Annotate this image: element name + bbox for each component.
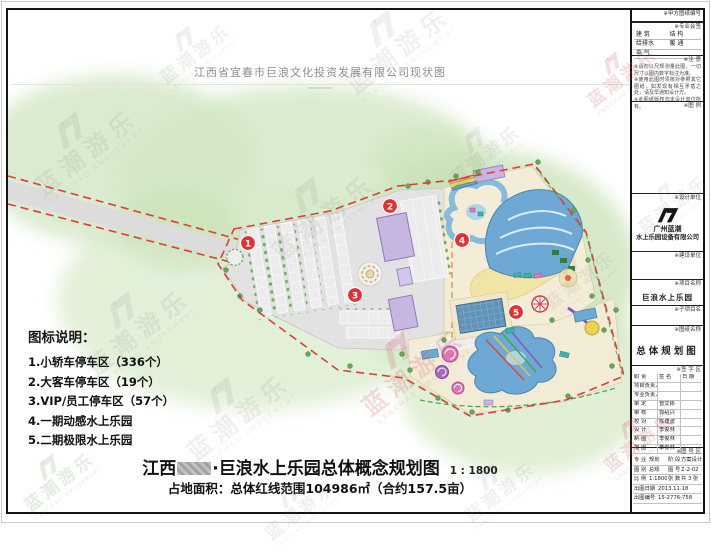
sig-col-sign: 签 名 (658, 374, 681, 383)
sig-name: 李俊林 (658, 427, 681, 436)
note-line: ※请勿以尺规测量此图，一切尺寸以图内数字标注为准。 (632, 64, 703, 77)
project-name: 巨浪水上乐园 (632, 292, 703, 303)
nb-specialty-value: 规划 (648, 456, 667, 466)
site-area-line: 占地面积：总体红线范围104986㎡（合约157.5亩） (8, 478, 632, 497)
sig-name: 陈建波 (658, 419, 681, 428)
nb-scale-value: 1:1800(A3) (648, 475, 667, 485)
marker-1: 1 (241, 236, 256, 251)
cosign-field-plumbing: 给排水 (634, 40, 668, 49)
marker-3: 3 (348, 288, 363, 303)
svg-text:1: 1 (245, 240, 251, 250)
sig-name: 郭绍兴 (658, 410, 681, 419)
drawing-sheet: { "watermark": { "cn": "蓝潮游乐", "en": "LA… (0, 0, 711, 524)
sig-name (658, 383, 681, 392)
legend-item: 2.大客车停车区（19个） (28, 373, 174, 393)
legend-item: 3.VIP/员工停车区（57个） (28, 392, 174, 412)
sig-role: 校 对 (633, 419, 658, 428)
sig-name: 曾文彬 (658, 401, 681, 410)
note-line: ※使用此图时须核对参照其它图纸，如发现有相互矛盾之处，请及早通知设计方。 (632, 77, 703, 97)
signature-section: ※签 字 区 职 责 签 名 日 期 项目负责人 专业负责人 审 定 曾文彬 审… (632, 366, 703, 448)
nb-number-label: 图 号 (667, 466, 680, 476)
roundabout (358, 262, 382, 286)
tb-legend-label: ※图 例 (632, 102, 703, 110)
build-unit-section: ※建设单位 (632, 252, 703, 280)
sheet-frame: 1 2 3 4 5 江西省宜春市巨浪 (6, 8, 705, 514)
legend-item: 5.二期极限水上乐园 (28, 431, 174, 451)
cabana (484, 400, 493, 405)
project-name-section: ※项目名称 巨浪水上乐园 (632, 280, 703, 306)
nb-number-value: Z-2-02 (680, 466, 702, 476)
drawing-title-region: 江西 (142, 459, 176, 479)
notes-section: ※注 意 ※请勿以尺规测量此图，一切尺寸以图内数字标注为准。 ※使用此图时须核对… (632, 56, 703, 102)
drawing-scale: 1 : 1800 (450, 465, 498, 477)
marker-2: 2 (383, 199, 398, 214)
nb-issue-no-value: 15-2776-758 (657, 494, 702, 504)
title-block: ※甲方图纸编号 ※专业会签 建 筑 结 构 给排水 暖 通 电 气 ※注 意 ※… (630, 10, 703, 512)
plaza-circle (559, 269, 577, 287)
design-unit-section: ※设计单位 广州蓝潮 水上乐园设备有限公司 (632, 194, 703, 252)
client-drawing-no-label: ※甲方图纸编号 (632, 10, 703, 18)
design-unit-name1: 广州蓝潮 (632, 225, 703, 234)
sig-date (681, 436, 702, 445)
plan-area: 1 2 3 4 5 江西省宜春市巨浪 (8, 10, 632, 512)
sig-role: 专业负责人 (633, 392, 658, 401)
cosign-section: ※专业会签 建 筑 结 构 给排水 暖 通 电 气 (632, 23, 703, 56)
cosign-field-architecture: 建 筑 (634, 31, 668, 40)
project-name-label: ※项目名称 (632, 280, 703, 288)
nb-type-value: 总规 (648, 466, 667, 476)
drawing-name-label: ※图纸名称 (632, 326, 703, 334)
sig-role: 审 定 (633, 401, 658, 410)
cabana (506, 328, 514, 333)
nb-stage-value: 方案设计 (680, 456, 702, 466)
sig-role: 制 图 (633, 436, 658, 445)
nb-date-value: 2013.11.18 (657, 485, 702, 495)
sig-date (681, 427, 702, 436)
sig-date (681, 410, 702, 419)
survey-header-rule (12, 84, 630, 85)
nb-specialty-label: 专 业 (633, 456, 648, 466)
sig-role: 项目负责人 (633, 383, 658, 392)
svg-text:5: 5 (513, 309, 519, 319)
lanchao-logo-icon (655, 205, 681, 224)
number-block-section: ※图 号 区 专 业 规划 阶 段 方案设计 图 别 总规 图 号 Z-2-02… (632, 448, 703, 512)
survey-header-submark (308, 87, 332, 89)
number-block-label: ※图 号 区 (632, 448, 703, 456)
subproject-section: ※子项目名 (632, 306, 703, 326)
survey-header-title: 江西省宜春市巨浪文化投资发展有限公司现状图 (8, 64, 632, 80)
design-unit-name2: 水上乐园设备有限公司 (632, 234, 703, 242)
sig-date (681, 419, 702, 428)
sig-date (681, 392, 702, 401)
cosign-label: ※专业会签 (632, 23, 703, 31)
drawing-name: 总体规划图 (632, 343, 703, 357)
cosign-field-hvac: 暖 通 (668, 40, 702, 49)
tb-legend-section: ※图 例 (632, 102, 703, 194)
sig-date (681, 383, 702, 392)
signature-label: ※签 字 区 (632, 366, 703, 374)
nb-issue-no-label: 出图编号 (633, 494, 657, 504)
svg-text:2: 2 (387, 203, 393, 213)
nb-stage-label: 阶 段 (667, 456, 680, 466)
drawing-title-line: 江西·巨浪水上乐园总体概念规划图1 : 1800 (8, 454, 632, 479)
client-drawing-no-section: ※甲方图纸编号 (632, 10, 703, 23)
notes-label: ※注 意 (632, 56, 703, 64)
wave-ball (532, 296, 548, 312)
sig-name (658, 392, 681, 401)
legend: 图标说明： 1.小轿车停车区（336个） 2.大客车停车区（19个） 3.VIP… (28, 326, 174, 451)
sig-name: 李俊林 (658, 436, 681, 445)
design-unit-label: ※设计单位 (632, 194, 703, 202)
nb-date-label: 出图日期 (633, 485, 657, 495)
subproject-label: ※子项目名 (632, 306, 703, 314)
nb-type-label: 图 别 (633, 466, 648, 476)
redacted-city-name (177, 462, 211, 475)
build-unit-label: ※建设单位 (632, 252, 703, 260)
sig-role: 设 计 (633, 427, 658, 436)
nb-sheets-label: 张 数 (667, 475, 680, 485)
cosign-field-structure: 结 构 (668, 31, 702, 40)
svg-text:4: 4 (459, 237, 465, 247)
nb-sheets-value: 共 3 张 (680, 475, 702, 485)
svg-text:3: 3 (352, 292, 358, 302)
legend-title: 图标说明： (28, 326, 174, 346)
sig-col-date: 日 期 (681, 374, 702, 383)
drawing-name-section: ※图纸名称 总体规划图 (632, 326, 703, 366)
marker-4: 4 (455, 233, 470, 248)
drawing-title-text: ·巨浪水上乐园总体概念规划图 (212, 459, 439, 479)
legend-item: 4.一期动感水上乐园 (28, 412, 174, 432)
sig-role: 审 核 (633, 410, 658, 419)
sig-date (681, 401, 702, 410)
sig-col-role: 职 责 (633, 374, 658, 383)
legend-item: 1.小轿车停车区（336个） (28, 353, 174, 373)
marker-5: 5 (509, 305, 524, 320)
nb-scale-label: 比 例 (633, 475, 648, 485)
